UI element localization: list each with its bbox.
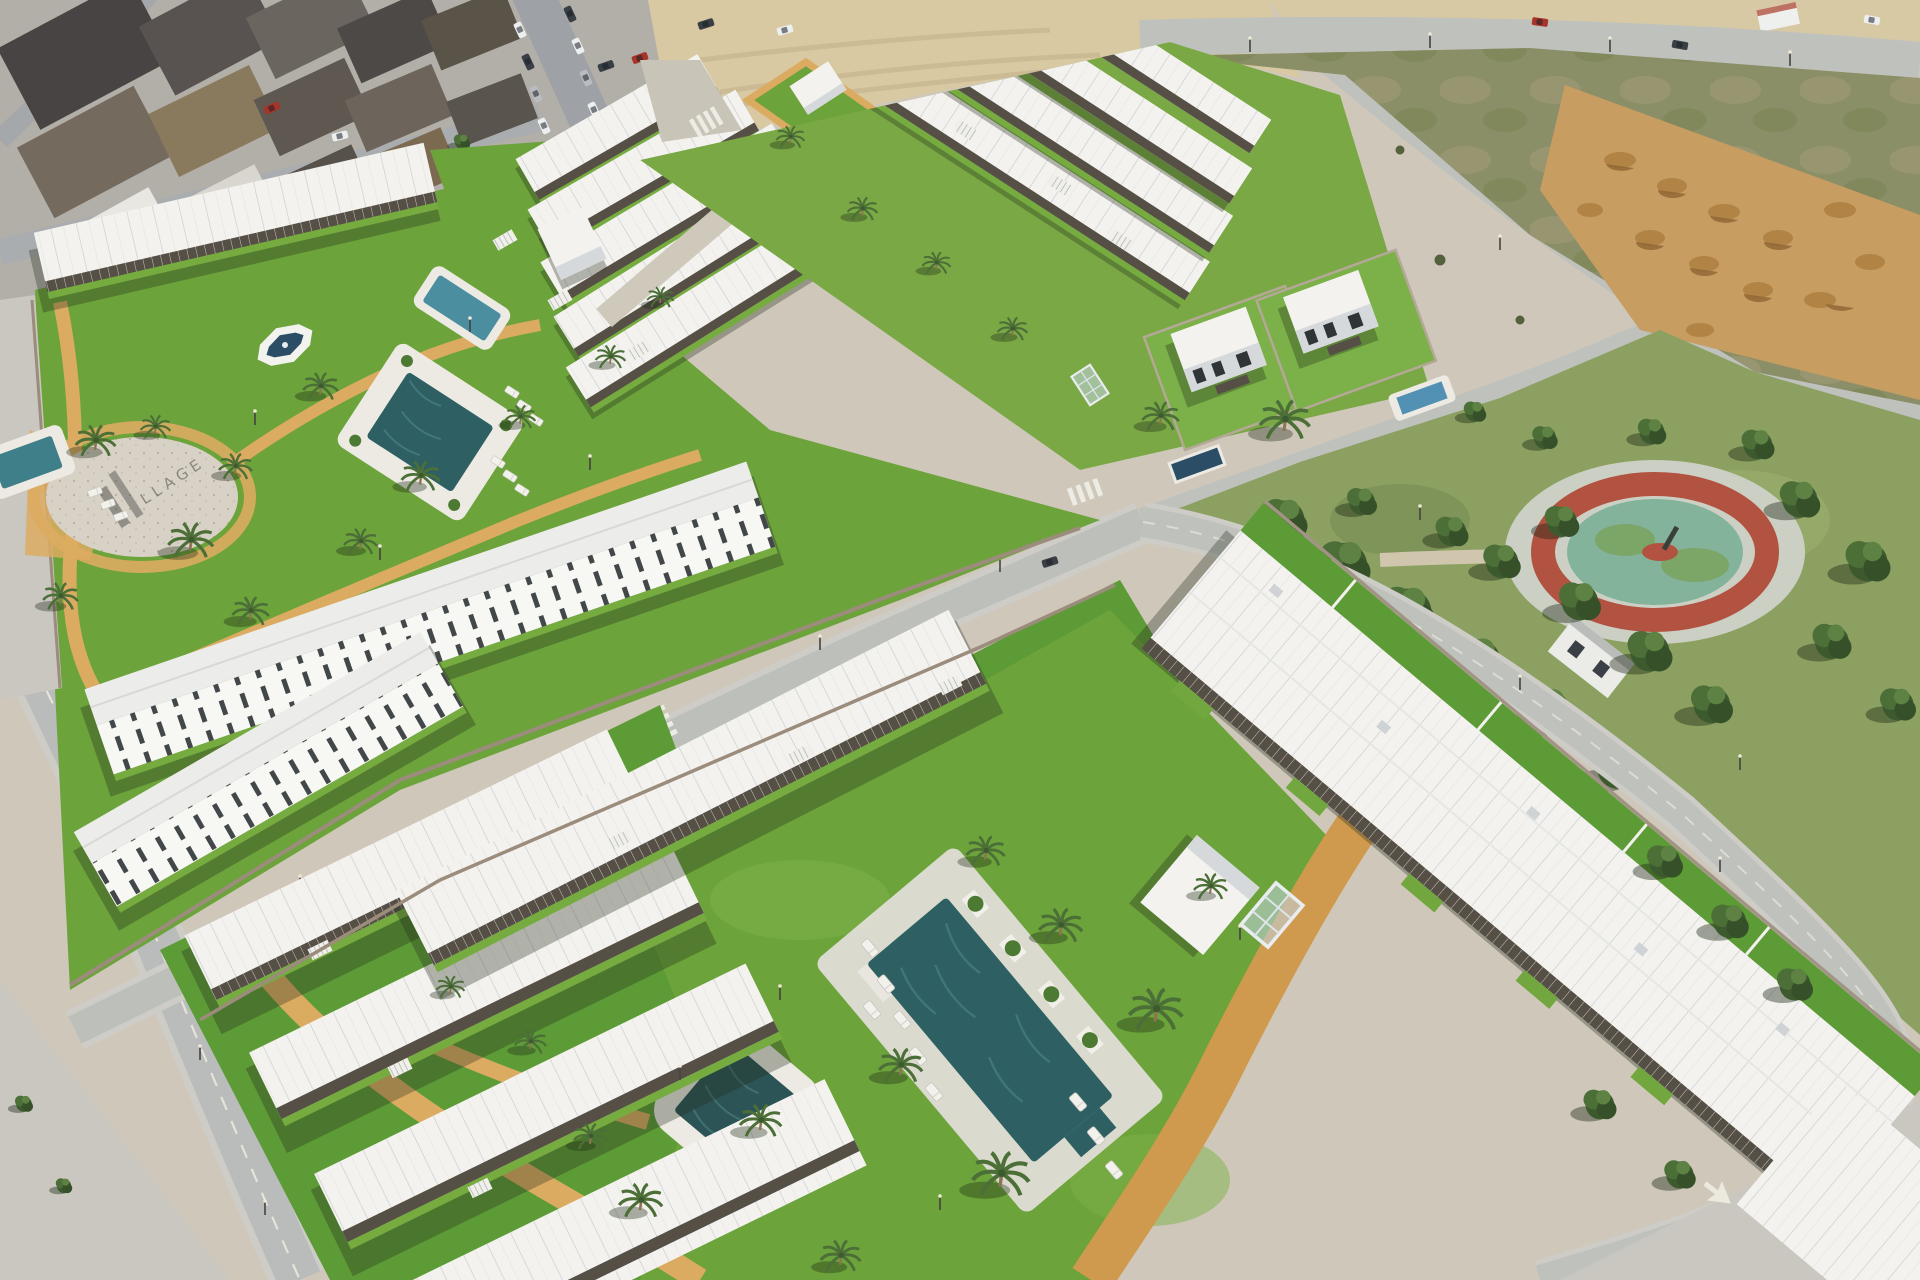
aerial-render: LLAGE	[0, 0, 1920, 1280]
